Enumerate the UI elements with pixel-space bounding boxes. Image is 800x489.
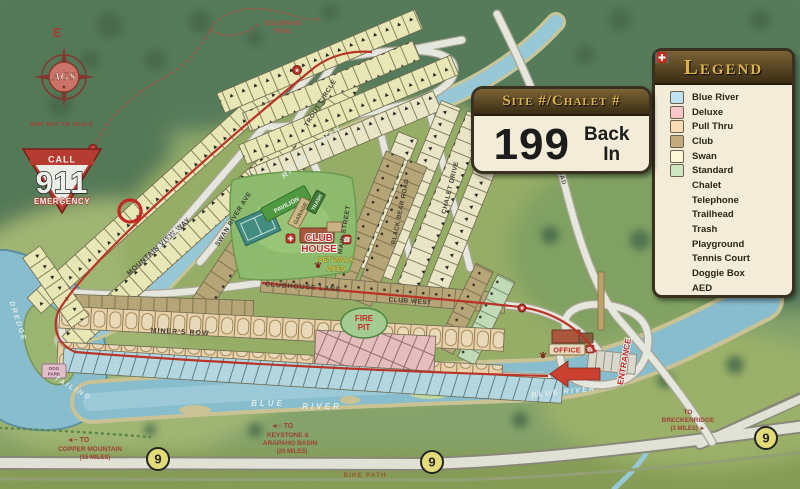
- trash-dumpster-icon: [669, 223, 684, 236]
- paw-icon: [669, 267, 684, 280]
- playground-icon: [669, 238, 684, 251]
- legend-item-trailhead: ★Trailhead: [655, 208, 792, 223]
- legend-item-standard: Standard: [655, 163, 792, 178]
- trailhead-star-icon: ★: [669, 208, 684, 221]
- deluxe-swatch: [669, 106, 684, 119]
- legend-panel: Legend Blue River Deluxe Pull Thru Club …: [652, 48, 795, 298]
- legend-item-trash: Trash: [655, 222, 792, 237]
- campground-map: PAVILION GARAGE TRASH ☎ CLUB HOUSE PET W…: [0, 0, 800, 489]
- legend-item-aed: AED: [655, 281, 792, 296]
- legend-item-telephone: ☎Telephone: [655, 193, 792, 208]
- orientation-line-2: In: [584, 145, 629, 165]
- pull-thru-swatch: [669, 120, 684, 133]
- legend-item-swan: Swan: [655, 149, 792, 164]
- legend-item-doggie-box: Doggie Box: [655, 266, 792, 281]
- site-orientation: Back In: [584, 125, 629, 165]
- site-number-sign: Site #/Chalet # 199 Back In: [471, 86, 652, 174]
- legend-item-pull-thru: Pull Thru: [655, 119, 792, 134]
- site-sign-header: Site #/Chalet #: [474, 89, 649, 116]
- legend-item-blue-river: Blue River: [655, 90, 792, 105]
- blue-river-swatch: [669, 91, 684, 104]
- club-swatch: [669, 135, 684, 148]
- telephone-icon: ☎: [669, 194, 684, 207]
- legend-item-club: Club: [655, 134, 792, 149]
- swan-swatch: [669, 150, 684, 163]
- standard-swatch: [669, 164, 684, 177]
- aed-cross-icon: [669, 282, 684, 295]
- orientation-line-1: Back: [584, 125, 629, 145]
- tennis-court-icon: [669, 252, 684, 265]
- legend-item-playground: Playground: [655, 237, 792, 252]
- chalet-triangle-icon: [669, 179, 684, 192]
- legend-item-chalet: Chalet: [655, 178, 792, 193]
- legend-item-deluxe: Deluxe: [655, 105, 792, 120]
- legend-item-tennis-court: Tennis Court: [655, 252, 792, 267]
- legend-title: Legend: [655, 51, 792, 85]
- site-number: 199: [494, 120, 570, 170]
